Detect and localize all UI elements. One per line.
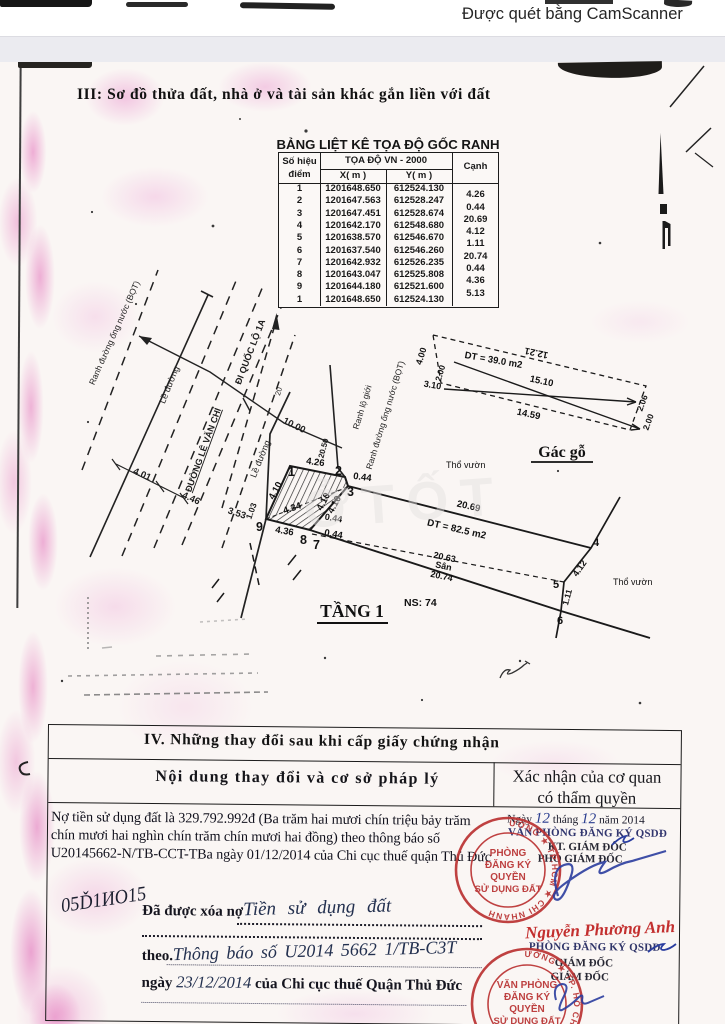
svg-text:2: 2 [335,464,342,478]
svg-text:20: 20 [273,386,284,396]
svg-text:10.00: 10.00 [281,416,307,436]
svg-text:3.10: 3.10 [423,379,442,392]
svg-text:PHÒNG: PHÒNG [490,846,527,859]
svg-text:5: 5 [553,579,559,591]
svg-text:SỬ DỤNG ĐẤT: SỬ DỤNG ĐẤT [494,1015,561,1024]
svg-text:VĂN PHÒNG: VĂN PHÒNG [497,978,558,991]
svg-text:2.00: 2.00 [641,412,656,431]
svg-text:7: 7 [313,538,320,552]
svg-text:QUYỀN: QUYỀN [509,1002,545,1015]
svg-text:QUYỀN: QUYỀN [490,870,526,883]
svg-text:1.03: 1.03 [244,501,259,520]
svg-text:4: 4 [593,537,600,549]
svg-text:4.12: 4.12 [570,558,588,578]
svg-text:4.26: 4.26 [305,456,325,469]
svg-text:Gác gỗ: Gác gỗ [538,444,586,461]
svg-text:TẦNG 1: TẦNG 1 [320,601,384,621]
svg-text:4.46: 4.46 [180,490,201,508]
svg-text:9: 9 [256,520,263,534]
svg-text:Lề đường: Lề đường [157,365,181,405]
svg-text:Ranh đường ống nước (BỌT): Ranh đường ống nước (BỌT) [364,360,407,471]
svg-text:6: 6 [557,615,563,627]
svg-text:DT = 39.0 m2: DT = 39.0 m2 [464,350,523,371]
svg-text:NS: 74: NS: 74 [404,597,437,609]
svg-text:15.10: 15.10 [529,374,555,390]
svg-text:4.00: 4.00 [414,346,429,366]
svg-text:ĐĂNG KÝ: ĐĂNG KÝ [485,858,531,871]
svg-text:Thổ vườn: Thổ vườn [613,577,652,587]
svg-text:14.59: 14.59 [516,407,542,423]
svg-text:ĐĂNG KÝ: ĐĂNG KÝ [504,990,550,1003]
svg-text:Ranh lộ giới: Ranh lộ giới [351,384,374,431]
svg-text:2.06: 2.06 [635,393,650,412]
svg-text:1: 1 [288,465,295,479]
svg-text:ĐƯỜNG LÊ VĂN CHÍ: ĐƯỜNG LÊ VĂN CHÍ [182,406,223,494]
svg-text:SỬ DỤNG ĐẤT: SỬ DỤNG ĐẤT [475,883,542,895]
svg-text:12.21: 12.21 [523,344,549,360]
svg-text:4.36: 4.36 [274,525,294,539]
svg-text:20.50: 20.50 [317,437,331,459]
